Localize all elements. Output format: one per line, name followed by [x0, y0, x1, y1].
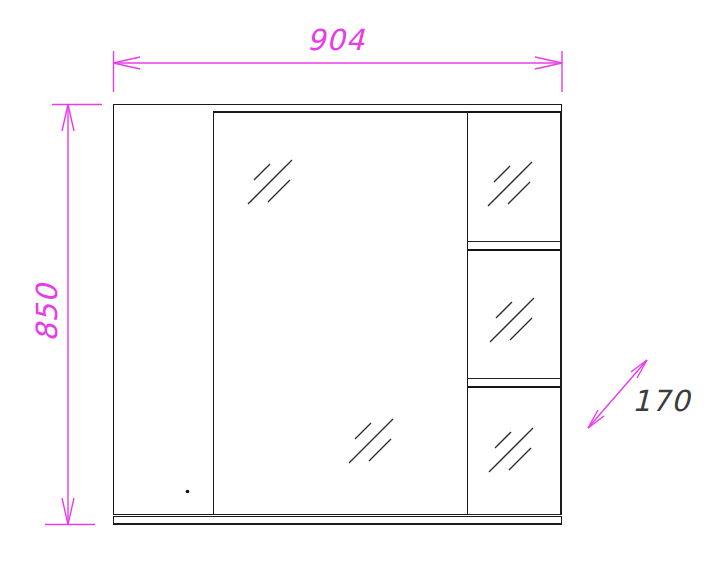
dimension-and-hatch-layer [0, 0, 720, 561]
width-dimension-label: 904 [302, 26, 370, 55]
height-dimension-label: 850 [33, 280, 62, 346]
door-knob [186, 490, 190, 494]
mirror-hatch-icon [349, 419, 393, 463]
width-dimension-line [114, 51, 563, 92]
technical-drawing-canvas: 904 850 170 [0, 0, 720, 561]
mirror-hatch-icon [490, 298, 534, 342]
mirror-hatch-icon [488, 162, 532, 206]
depth-dimension-label: 170 [632, 387, 704, 416]
mirror-hatch-icon [248, 160, 292, 204]
mirror-hatch-icon [489, 428, 533, 472]
